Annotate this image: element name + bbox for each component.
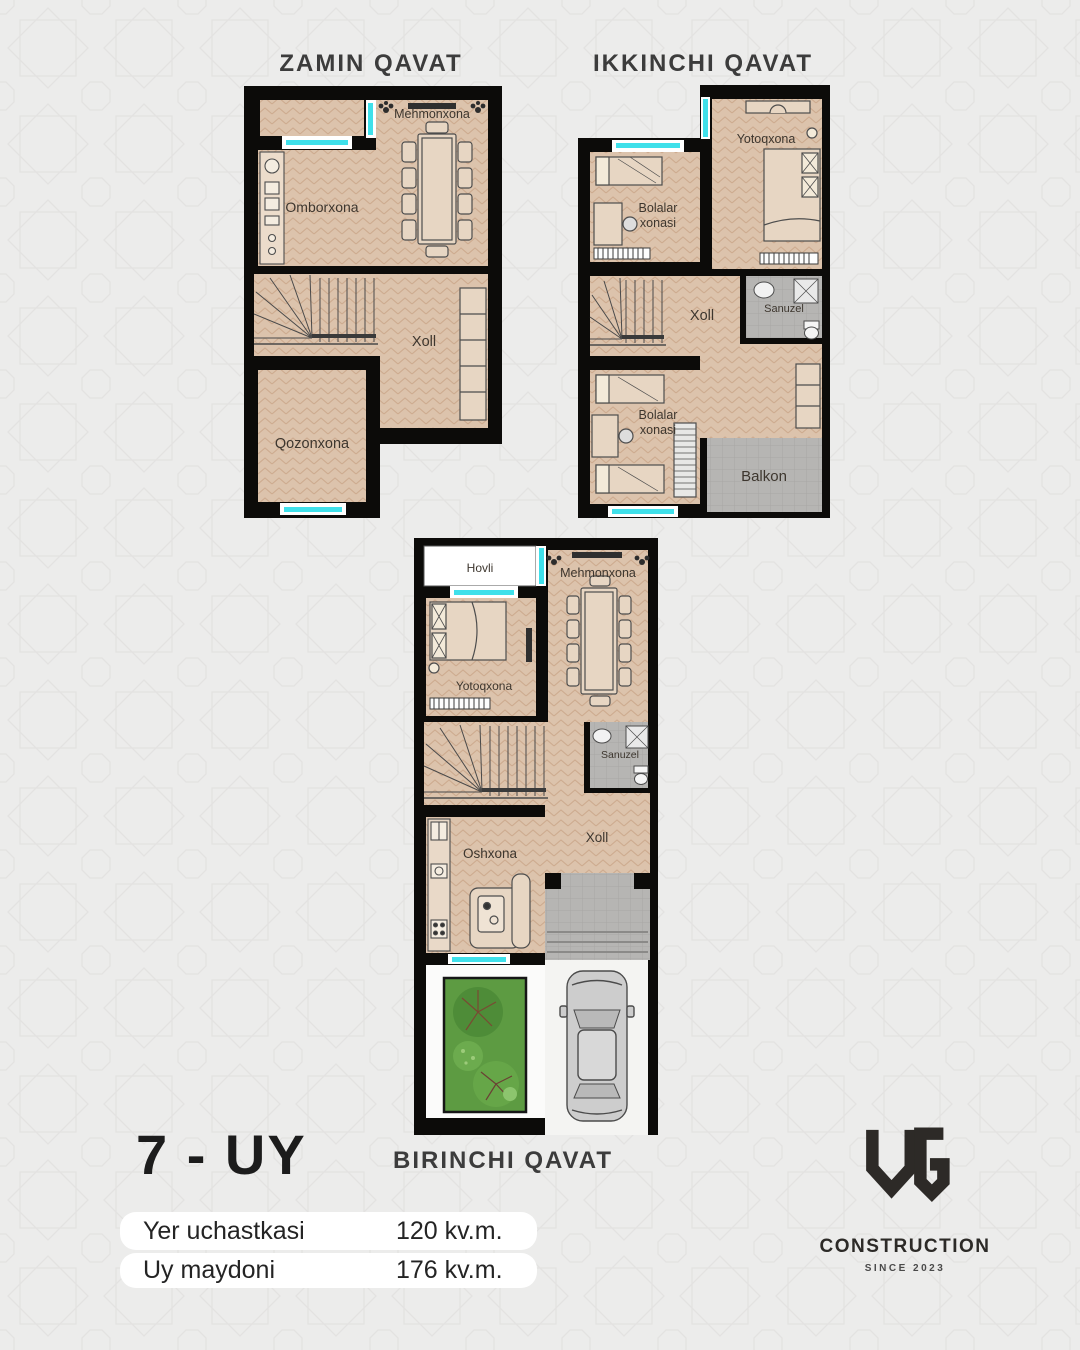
room-label: Sanuzel [601, 749, 639, 761]
room-label: Oshxona [463, 846, 518, 861]
room-label: Bolalar [639, 408, 678, 422]
stat-label: Uy maydoni [143, 1256, 275, 1285]
car-icon [560, 971, 634, 1121]
stat-value: 120 kv.m. [396, 1217, 503, 1246]
corridor-floor [552, 722, 586, 792]
house-number: 7 - UY [136, 1122, 307, 1187]
floorplan-poster: ZAMIN QAVAT IKKINCHI QAVAT BIRINCHI QAVA… [0, 0, 1080, 1350]
wall [545, 873, 561, 889]
storage-appliances [260, 152, 284, 264]
tv-icon [572, 552, 622, 558]
kitchen-counter [428, 819, 450, 951]
room-label: Yotoqxona [737, 132, 796, 146]
wall [584, 722, 590, 792]
plan-title-birinchi: BIRINCHI QAVAT [353, 1147, 653, 1175]
plan-zamin-qavat: Mehmonxona Omborxona Xoll Qozonxona [244, 86, 502, 518]
stat-house-area: Uy maydoni 176 kv.m. [120, 1253, 537, 1288]
plan-birinchi-qavat: Hovli Mehmonxona Yotoqxona Sanuzel Xoll … [414, 538, 658, 1135]
room-label: Xoll [690, 308, 714, 324]
ug-monogram-icon [857, 1120, 953, 1228]
room-label: Bolalar [639, 201, 678, 215]
wall [584, 788, 650, 793]
plan-title-zamin: ZAMIN QAVAT [221, 50, 521, 78]
plan-ikkinchi-qavat: Yotoqxona Bolalar xonasi Sanuzel Xoll Bo… [578, 85, 830, 518]
room-label: xonasi [640, 216, 676, 230]
logo-name: CONSTRUCTION [795, 1236, 1015, 1258]
room-label: Xoll [586, 830, 609, 845]
room-label: Mehmonxona [560, 566, 636, 580]
room-label: Xoll [412, 334, 436, 350]
shelf [796, 364, 820, 428]
wardrobe [460, 288, 486, 420]
room-label: Mehmonxona [394, 107, 470, 121]
room-label: xonasi [640, 423, 676, 437]
wall [634, 873, 650, 889]
room-label: Sanuzel [764, 303, 804, 315]
logo-since: SINCE 2023 [795, 1263, 1015, 1274]
room-label: Yotoqxona [456, 679, 513, 693]
stat-label: Yer uchastkasi [143, 1217, 305, 1246]
room-label: Qozonxona [275, 436, 350, 452]
company-logo: CONSTRUCTION SINCE 2023 [795, 1120, 1015, 1274]
window-icon [539, 548, 544, 584]
garden [444, 978, 526, 1112]
radiator-icon [430, 698, 490, 709]
room-label: Balkon [741, 468, 787, 485]
corridor-floor [260, 100, 364, 136]
room-label: Omborxona [285, 199, 358, 215]
stairs-floor [424, 722, 552, 805]
stat-value: 176 kv.m. [396, 1256, 503, 1285]
wall [740, 276, 746, 344]
stat-land-area: Yer uchastkasi 120 kv.m. [120, 1212, 537, 1250]
plan-title-ikkinchi: IKKINCHI QAVAT [543, 50, 863, 78]
room-label: Hovli [467, 561, 494, 575]
